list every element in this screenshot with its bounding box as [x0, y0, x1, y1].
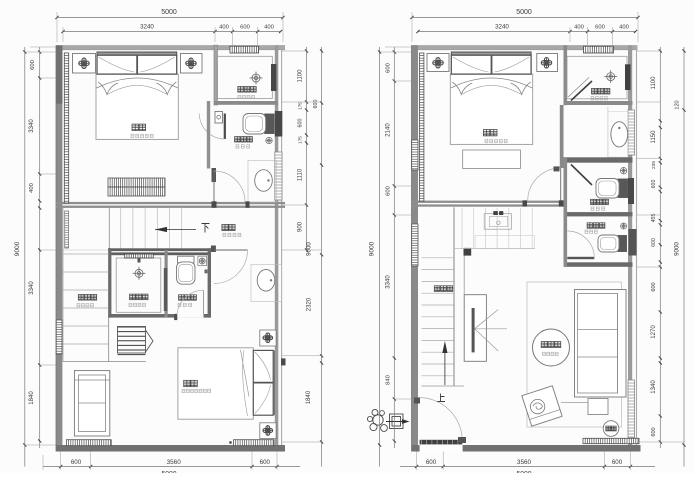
svg-text:5000: 5000	[161, 9, 177, 16]
svg-text:2140: 2140	[386, 123, 392, 137]
svg-text:120: 120	[675, 100, 681, 109]
svg-text:600: 600	[260, 459, 271, 466]
svg-text:1100: 1100	[651, 76, 657, 90]
svg-text:1150: 1150	[651, 130, 657, 144]
svg-text:175: 175	[298, 102, 303, 110]
svg-text:175: 175	[298, 136, 303, 144]
svg-text:400: 400	[264, 25, 274, 31]
svg-text:600: 600	[651, 180, 657, 189]
svg-text:400: 400	[219, 25, 229, 31]
svg-text:600: 600	[651, 282, 657, 291]
svg-text:2320: 2320	[307, 297, 313, 311]
svg-text:3240: 3240	[495, 24, 509, 31]
svg-text:400: 400	[619, 25, 629, 31]
svg-text:900: 900	[298, 221, 304, 232]
svg-text:600: 600	[298, 119, 304, 128]
svg-text:600: 600	[612, 459, 623, 466]
svg-text:840: 840	[386, 375, 392, 385]
svg-text:600: 600	[386, 186, 392, 196]
svg-text:600: 600	[386, 63, 392, 73]
svg-text:1100: 1100	[298, 69, 304, 83]
svg-text:400: 400	[574, 25, 584, 31]
svg-text:600: 600	[30, 60, 36, 70]
svg-text:3340: 3340	[386, 275, 392, 289]
svg-text:1840: 1840	[306, 390, 312, 404]
svg-text:1340: 1340	[651, 380, 657, 394]
svg-text:9000: 9000	[306, 242, 313, 256]
svg-text:235: 235	[651, 161, 657, 169]
svg-text:600: 600	[595, 25, 605, 31]
svg-text:3340: 3340	[29, 119, 35, 133]
svg-text:3560: 3560	[167, 459, 182, 466]
svg-text:600: 600	[71, 459, 82, 466]
svg-text:600: 600	[426, 459, 437, 466]
svg-text:3560: 3560	[517, 459, 532, 466]
svg-text:9000: 9000	[14, 241, 21, 256]
svg-text:3340: 3340	[29, 281, 35, 295]
svg-text:600: 600	[651, 427, 657, 436]
svg-text:5000: 5000	[516, 9, 532, 16]
svg-text:3240: 3240	[140, 24, 154, 31]
svg-text:1270: 1270	[651, 325, 657, 339]
svg-text:600: 600	[313, 100, 319, 109]
svg-text:600: 600	[240, 25, 250, 31]
svg-text:1840: 1840	[29, 391, 35, 405]
svg-text:600: 600	[651, 238, 657, 247]
svg-text:400: 400	[29, 183, 35, 193]
svg-text:9000: 9000	[369, 241, 376, 256]
svg-text:9000: 9000	[674, 242, 681, 256]
svg-text:1110: 1110	[298, 168, 304, 181]
